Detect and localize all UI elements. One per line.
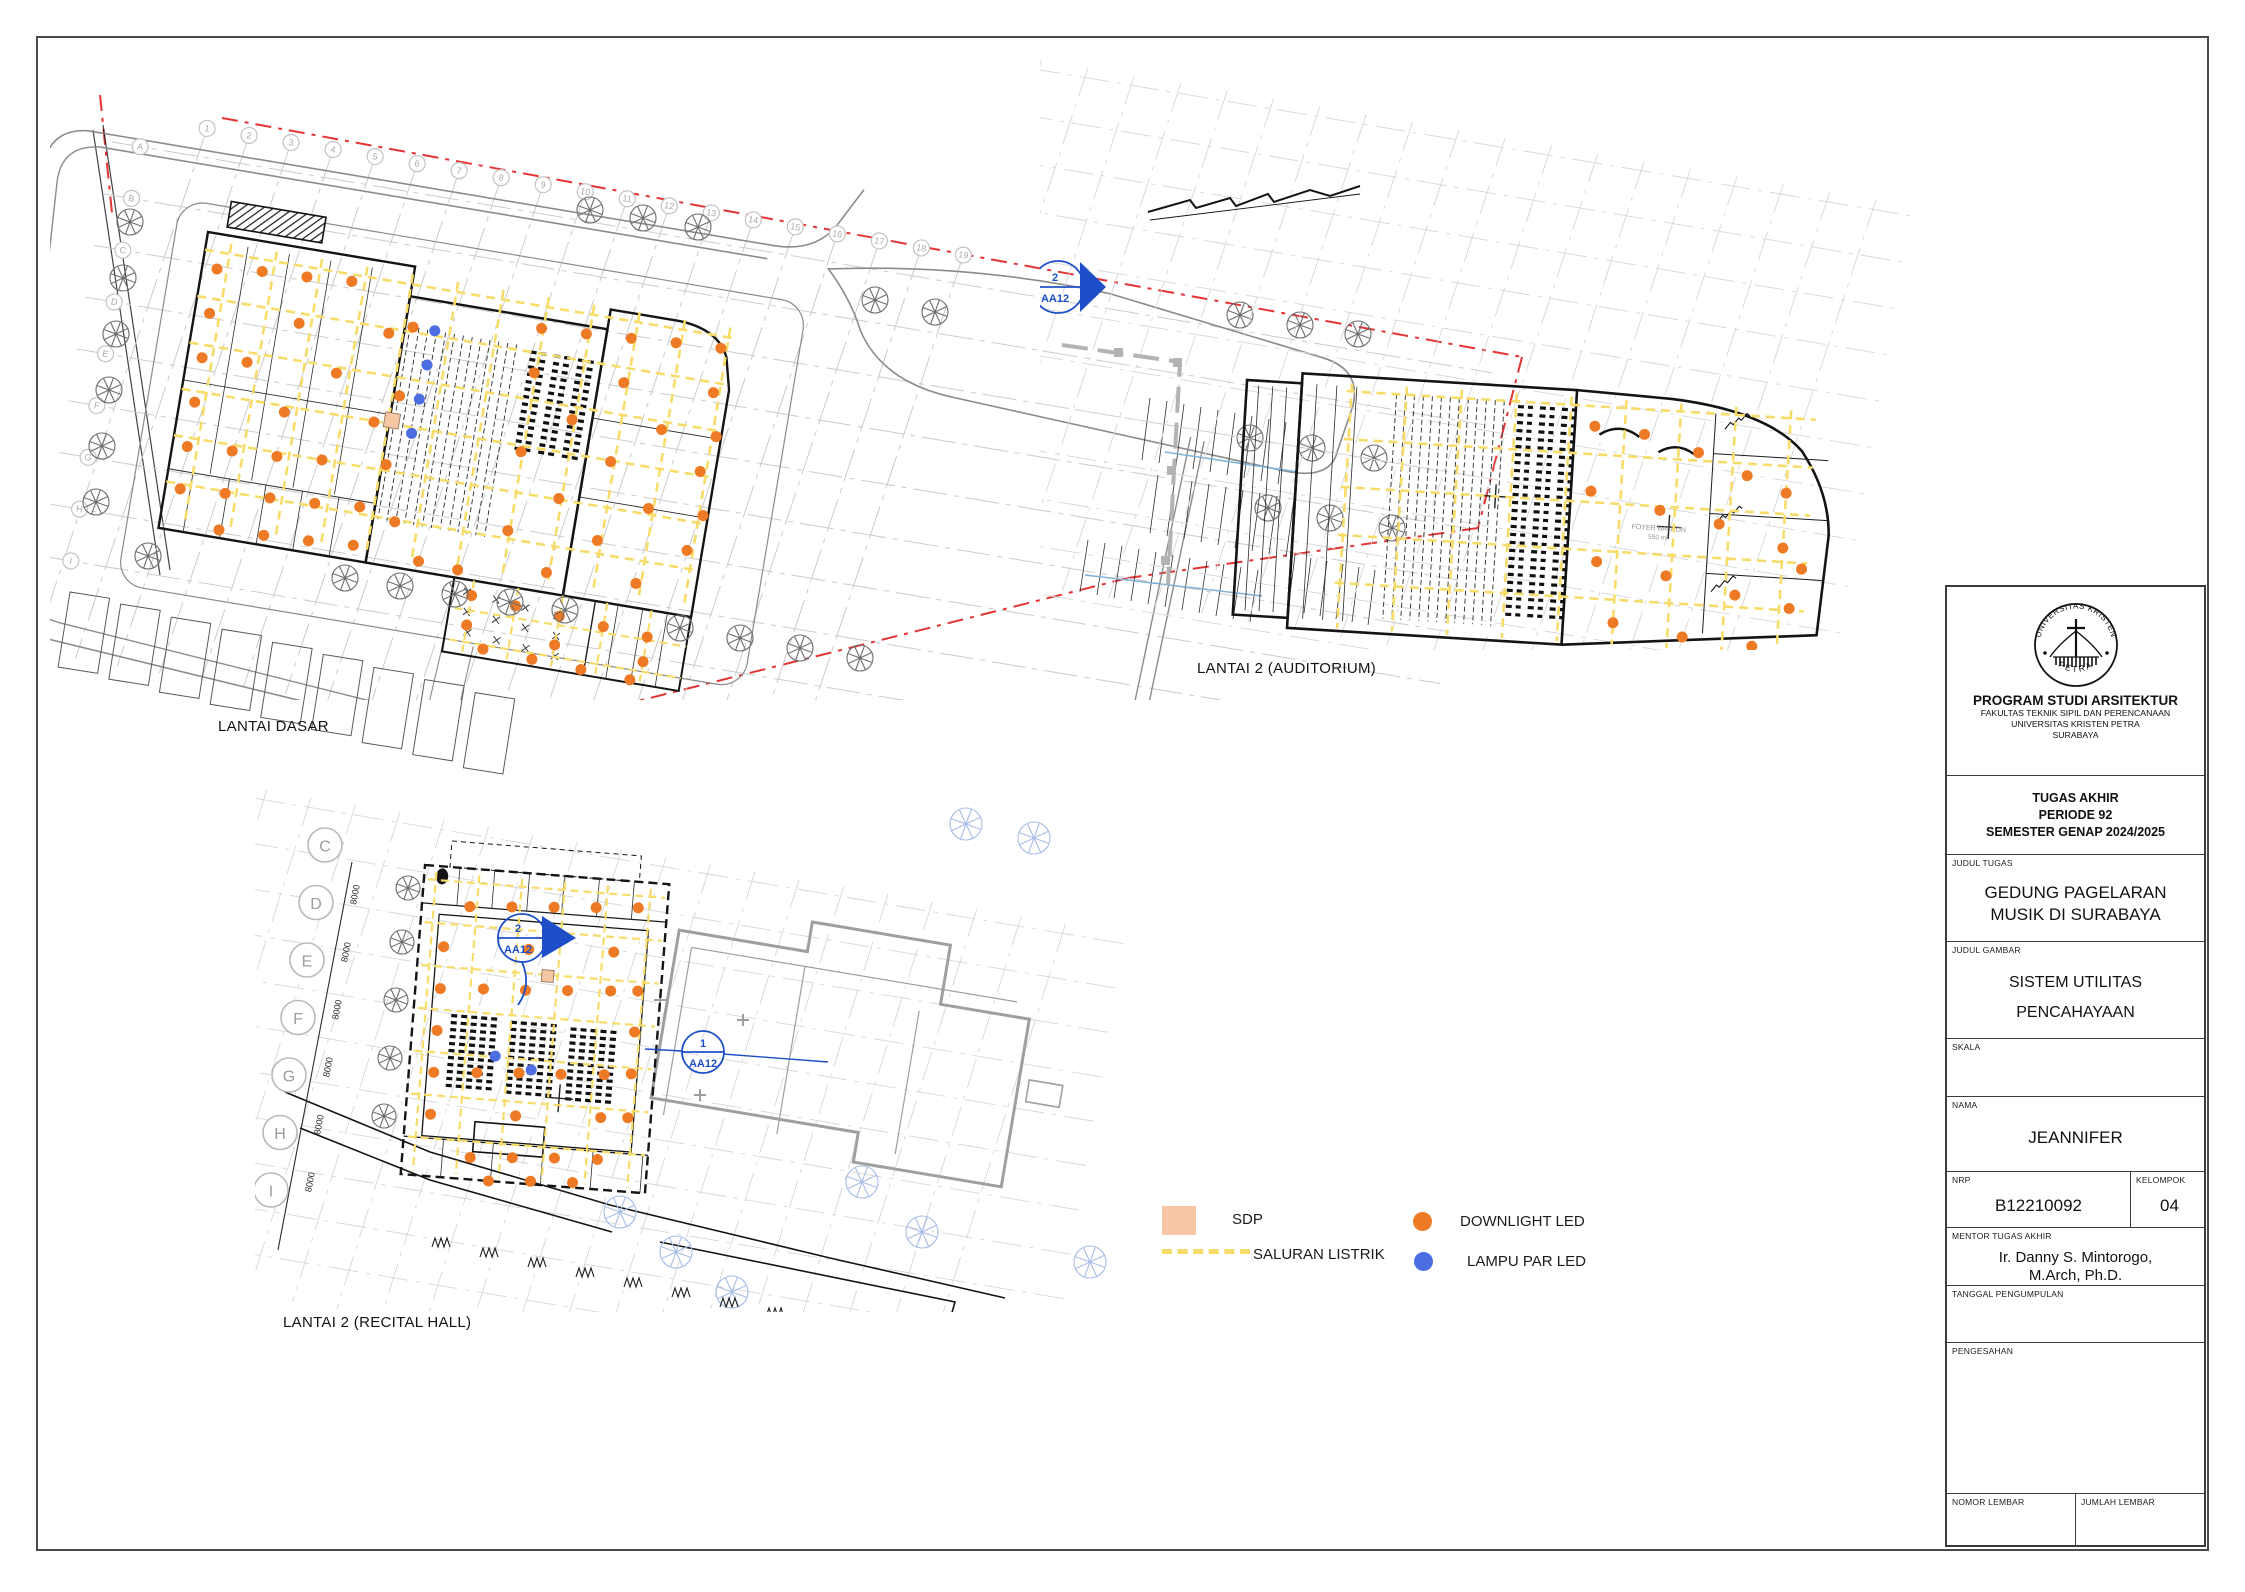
rec-sdp bbox=[541, 970, 554, 983]
rec-grid-letters: CDEFGHI bbox=[254, 828, 342, 1207]
rec-marker2-code: AA12 bbox=[504, 944, 532, 956]
tanggal-label: TANGGAL PENGUMPULAN bbox=[1952, 1289, 2064, 1299]
jumlah-lembar-label: JUMLAH LEMBAR bbox=[2081, 1497, 2155, 1507]
svg-text:15: 15 bbox=[790, 221, 802, 233]
lampu-par-label: LAMPU PAR LED bbox=[1467, 1253, 1586, 1270]
task-line2: PERIODE 92 bbox=[2039, 807, 2113, 824]
kelompok-cell: KELOMPOK 04 bbox=[2130, 1172, 2208, 1227]
title-block-lembar: NOMOR LEMBAR JUMLAH LEMBAR bbox=[1947, 1493, 2204, 1545]
site-parking-east bbox=[1080, 398, 1375, 625]
judul-gambar-line2: PENCAHAYAAN bbox=[2016, 1003, 2135, 1023]
svg-text:H: H bbox=[274, 1126, 286, 1143]
kelompok-value: 04 bbox=[2160, 1195, 2179, 1217]
svg-text:D: D bbox=[310, 896, 322, 913]
university-name: UNIVERSITAS KRISTEN PETRA bbox=[2011, 719, 2140, 730]
mentor-line2: M.Arch, Ph.D. bbox=[2029, 1267, 2122, 1285]
aud-marker-number: 2 bbox=[1052, 272, 1058, 284]
kelompok-label: KELOMPOK bbox=[2136, 1175, 2185, 1185]
dept-name: PROGRAM STUDI ARSITEKTUR bbox=[1973, 693, 2178, 708]
rec-seats bbox=[445, 1016, 616, 1103]
judul-tugas-label: JUDUL TUGAS bbox=[1952, 858, 2013, 868]
svg-text:18: 18 bbox=[916, 242, 928, 254]
task-line1: TUGAS AKHIR bbox=[2032, 790, 2118, 807]
aud-marker-code: AA12 bbox=[1041, 293, 1069, 305]
aud-downlights bbox=[1576, 420, 1815, 654]
svg-text:8000: 8000 bbox=[303, 1171, 317, 1193]
svg-text:E: E bbox=[302, 953, 313, 970]
rec-trees-blue bbox=[604, 808, 1106, 1308]
recital-plan: CDEFGHI 800080008000800080008000 bbox=[115, 779, 1125, 1427]
rec-marker1-code: AA12 bbox=[689, 1058, 717, 1070]
title-block-tanggal: TANGGAL PENGUMPULAN bbox=[1947, 1285, 2204, 1342]
judul-tugas-line1: GEDUNG PAGELARAN bbox=[1984, 882, 2166, 904]
title-block-judul-gambar: JUDUL GAMBAR SISTEM UTILITAS PENCAHAYAAN bbox=[1947, 941, 2204, 1038]
nrp-value: B12210092 bbox=[1995, 1195, 2082, 1217]
judul-tugas-line2: MUSIK DI SURABAYA bbox=[1990, 904, 2160, 926]
drawing-sheet: 12345678910111213141516171819 ABCDEFGHI bbox=[0, 0, 2245, 1587]
aud-roof-edge bbox=[1148, 186, 1360, 212]
title-block-nrp-kelompok: NRP B12210092 KELOMPOK 04 bbox=[1947, 1171, 2204, 1227]
svg-text:19: 19 bbox=[958, 249, 970, 261]
aud-room-label: FOYER BALKON bbox=[1631, 524, 1686, 534]
aud-grid bbox=[876, 47, 1920, 727]
university-logo-icon: UNIVERSITAS KRISTEN PETRA bbox=[2032, 601, 2120, 689]
title-block-institution: UNIVERSITAS KRISTEN PETRA PROGRAM STUDI … bbox=[1947, 587, 2204, 775]
svg-text:16: 16 bbox=[832, 228, 844, 240]
rec-marker1-number: 1 bbox=[700, 1038, 706, 1050]
nama-value: JEANNIFER bbox=[2028, 1127, 2122, 1149]
recital-plan-label: LANTAI 2 (RECITAL HALL) bbox=[283, 1314, 471, 1331]
title-block-task: TUGAS AKHIR PERIODE 92 SEMESTER GENAP 20… bbox=[1947, 775, 2204, 854]
mentor-label: MENTOR TUGAS AKHIR bbox=[1952, 1231, 2052, 1241]
svg-text:8000: 8000 bbox=[339, 941, 353, 963]
svg-text:8000: 8000 bbox=[348, 884, 362, 906]
city-name: SURABAYA bbox=[2052, 730, 2098, 741]
nrp-label: NRP bbox=[1952, 1175, 1971, 1185]
svg-text:G: G bbox=[283, 1068, 295, 1085]
nomor-lembar-cell: NOMOR LEMBAR bbox=[1947, 1494, 2075, 1545]
auditorium-plan: 2 AA12 FOYER BALKON 550 m² bbox=[876, 47, 1920, 727]
title-block-skala: SKALA bbox=[1947, 1038, 2204, 1096]
nama-label: NAMA bbox=[1952, 1100, 1977, 1110]
svg-text:17: 17 bbox=[874, 235, 886, 247]
downlight-dot-icon bbox=[1413, 1212, 1432, 1231]
site-parking-south bbox=[52, 592, 520, 774]
svg-text:11: 11 bbox=[622, 193, 633, 204]
svg-text:13: 13 bbox=[705, 207, 717, 219]
task-line3: SEMESTER GENAP 2024/2025 bbox=[1986, 824, 2165, 841]
saluran-listrik-dash-icon bbox=[1162, 1249, 1250, 1254]
rec-adjacent-building bbox=[646, 901, 1082, 1195]
svg-text:8000: 8000 bbox=[312, 1114, 326, 1136]
saluran-label: SALURAN LISTRIK bbox=[1253, 1246, 1385, 1263]
title-block-pengesahan: PENGESAHAN bbox=[1947, 1342, 2204, 1493]
svg-text:I: I bbox=[269, 1183, 273, 1200]
lampu-par-dot-icon bbox=[1414, 1252, 1433, 1271]
site-rotated: 12345678910111213141516171819 ABCDEFGHI bbox=[0, 55, 1505, 943]
sdp-label: SDP bbox=[1232, 1211, 1263, 1228]
rec-dim-labels: 800080008000800080008000 bbox=[303, 884, 362, 1193]
jumlah-lembar-cell: JUMLAH LEMBAR bbox=[2075, 1494, 2208, 1545]
rec-section-marker-1: 1 AA12 bbox=[645, 1031, 828, 1073]
svg-text:8000: 8000 bbox=[330, 999, 344, 1021]
title-block-mentor: MENTOR TUGAS AKHIR Ir. Danny S. Mintorog… bbox=[1947, 1227, 2204, 1285]
title-block-judul-tugas: JUDUL TUGAS GEDUNG PAGELARAN MUSIK DI SU… bbox=[1947, 854, 2204, 941]
rec-building bbox=[400, 839, 671, 1199]
title-block-nama: NAMA JEANNIFER bbox=[1947, 1096, 2204, 1171]
judul-gambar-label: JUDUL GAMBAR bbox=[1952, 945, 2021, 955]
svg-text:14: 14 bbox=[748, 214, 760, 226]
pengesahan-label: PENGESAHAN bbox=[1952, 1346, 2013, 1356]
svg-text:F: F bbox=[293, 1011, 303, 1028]
title-block: UNIVERSITAS KRISTEN PETRA PROGRAM STUDI … bbox=[1945, 585, 2206, 1547]
nrp-cell: NRP B12210092 bbox=[1947, 1172, 2130, 1227]
skala-label: SKALA bbox=[1952, 1042, 1980, 1052]
mentor-line1: Ir. Danny S. Mintorogo, bbox=[1999, 1249, 2152, 1267]
site-sdp bbox=[383, 412, 400, 429]
svg-text:10: 10 bbox=[579, 186, 591, 198]
svg-text:8000: 8000 bbox=[321, 1056, 335, 1078]
aud-room-area: 550 m² bbox=[1648, 534, 1669, 542]
svg-text:C: C bbox=[319, 838, 331, 855]
judul-gambar-line1: SISTEM UTILITAS bbox=[2009, 973, 2142, 993]
rec-marker2-number: 2 bbox=[515, 923, 521, 935]
site-trees bbox=[83, 197, 1405, 671]
plans-svg: 12345678910111213141516171819 ABCDEFGHI bbox=[0, 0, 2245, 1587]
aud-section-marker: 2 AA12 bbox=[1032, 261, 1106, 313]
auditorium-plan-label: LANTAI 2 (AUDITORIUM) bbox=[1197, 660, 1376, 677]
site-plan-label: LANTAI DASAR bbox=[218, 718, 329, 735]
svg-text:12: 12 bbox=[663, 200, 675, 212]
nomor-lembar-label: NOMOR LEMBAR bbox=[1952, 1497, 2024, 1507]
rec-bushes bbox=[432, 1238, 784, 1317]
downlight-label: DOWNLIGHT LED bbox=[1460, 1213, 1585, 1230]
faculty-name: FAKULTAS TEKNIK SIPIL DAN PERENCANAAN bbox=[1981, 708, 2170, 719]
rec-grid bbox=[115, 779, 1125, 1427]
site-roads bbox=[0, 55, 1375, 921]
site-grid-vertical bbox=[33, 114, 963, 792]
sdp-swatch bbox=[1162, 1206, 1196, 1235]
